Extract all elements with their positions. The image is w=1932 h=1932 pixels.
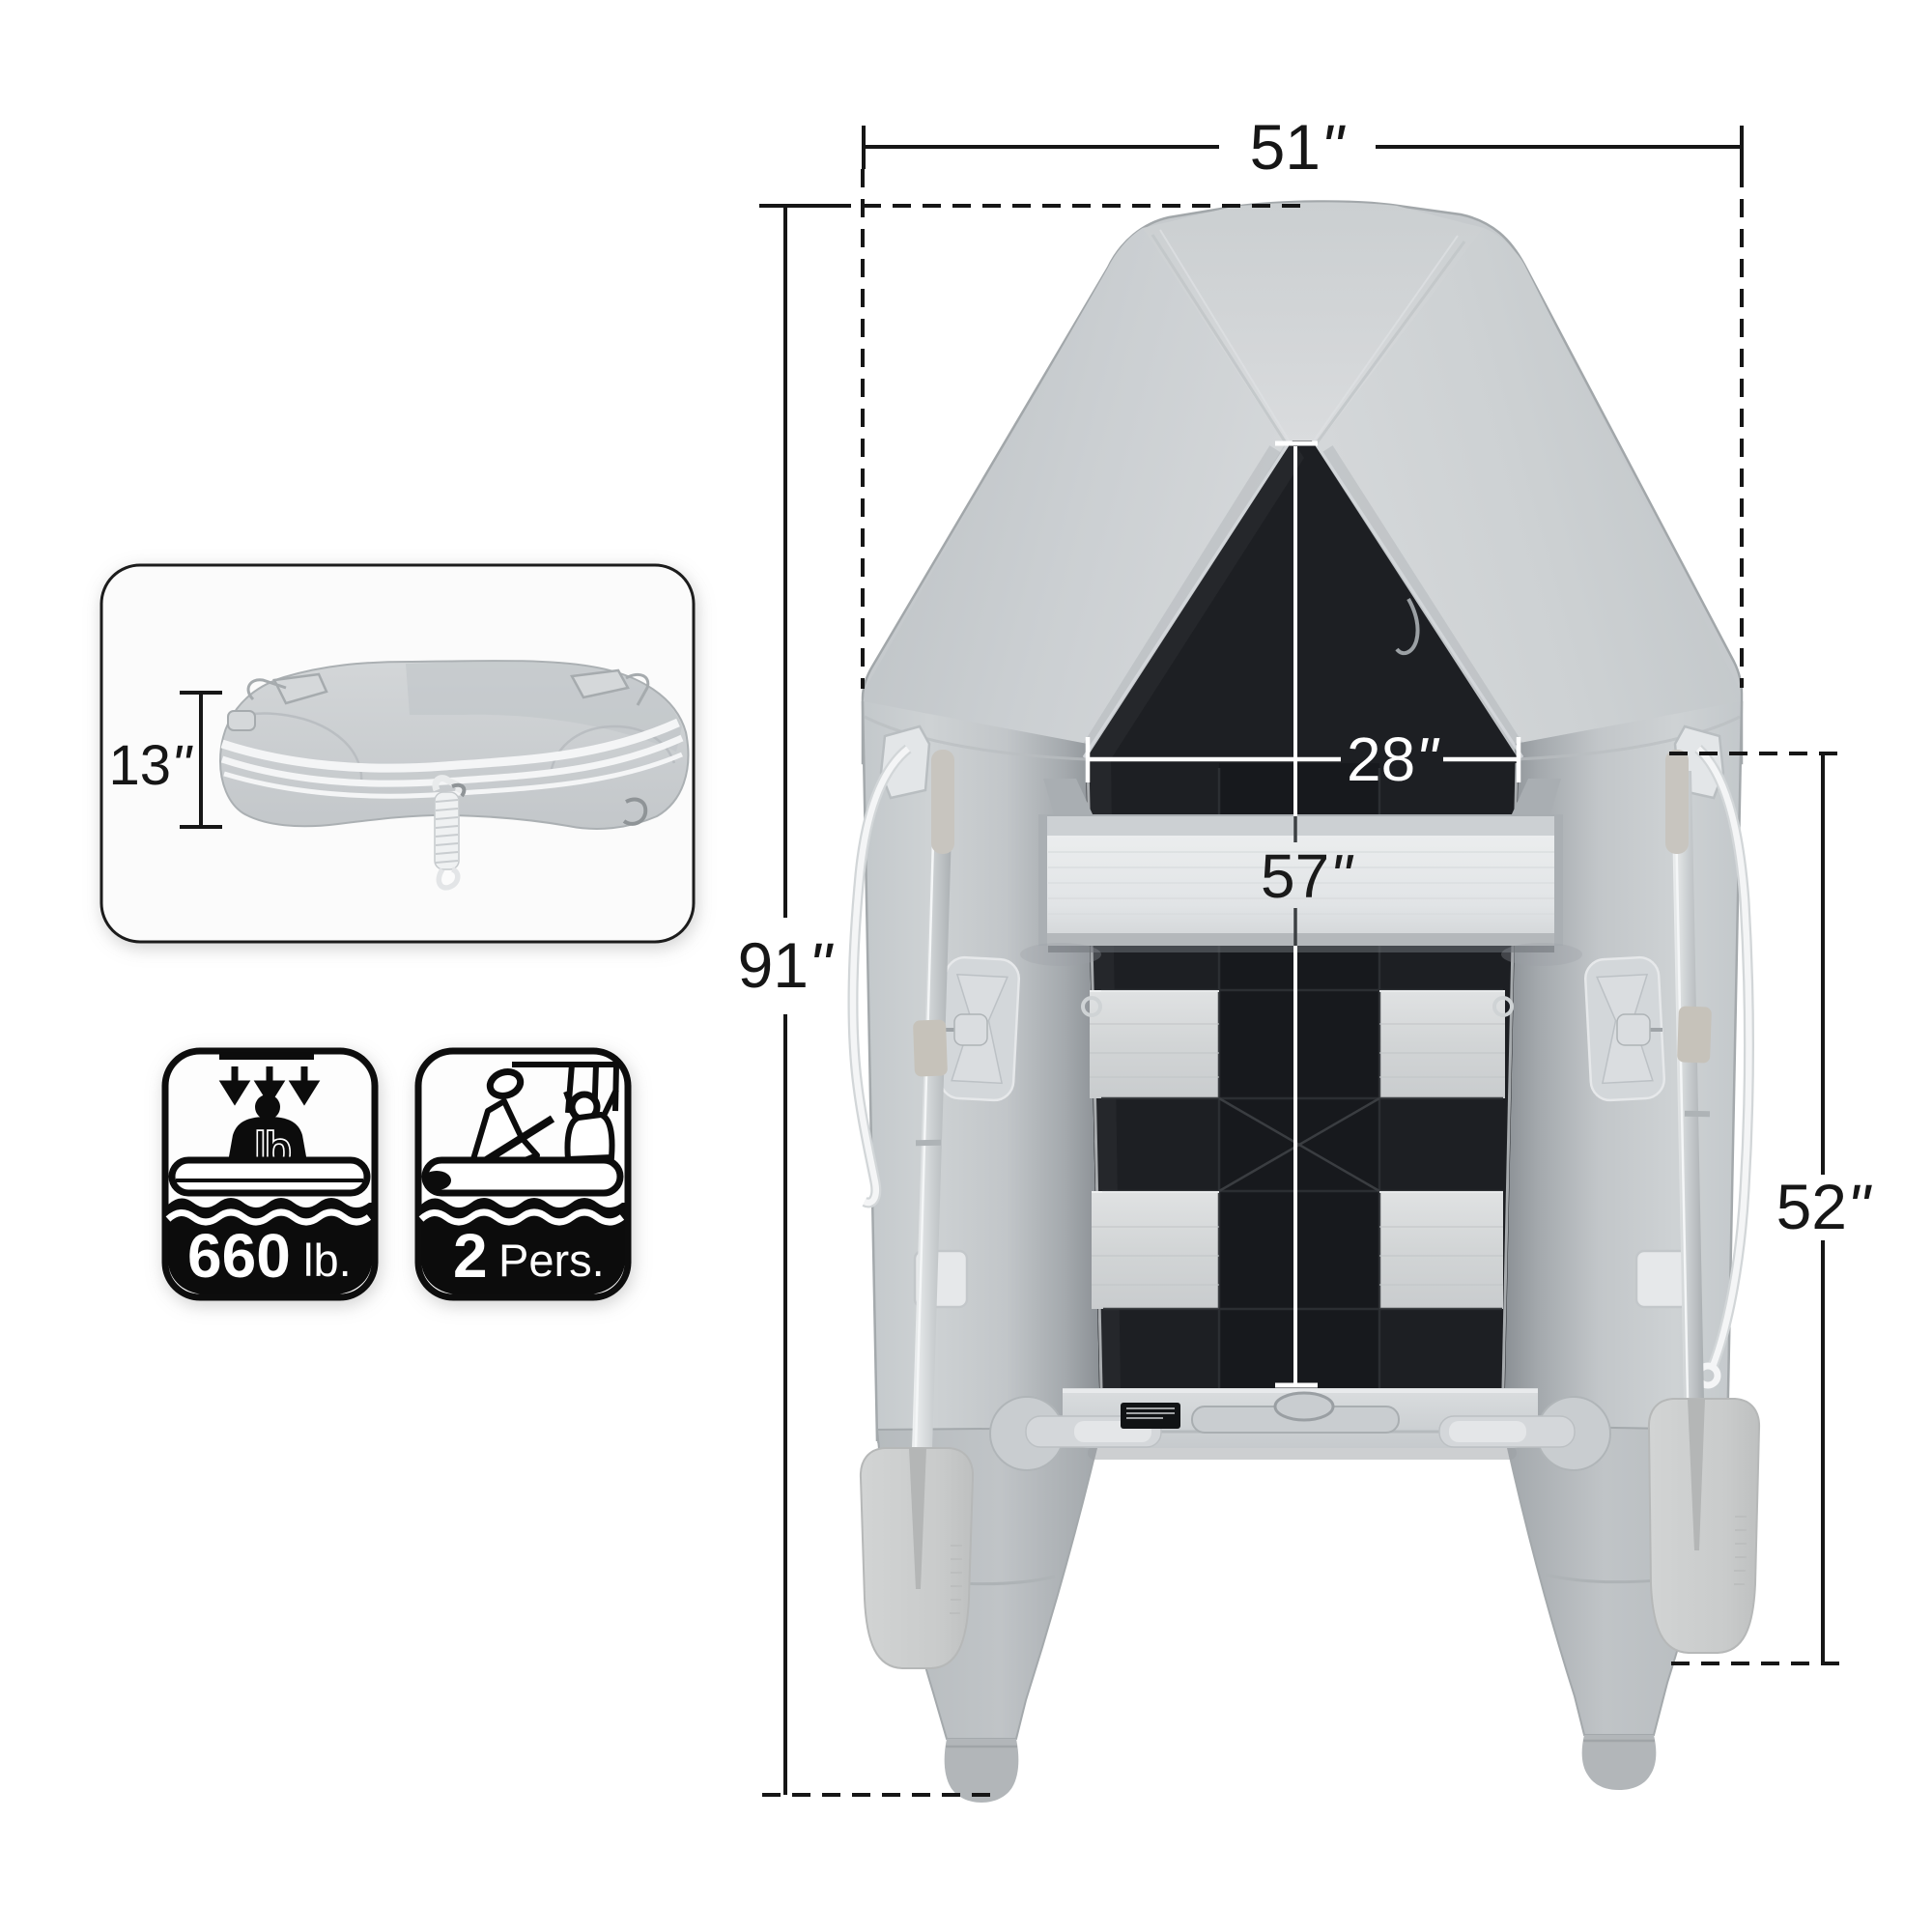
svg-text:28": 28" <box>1347 724 1440 794</box>
svg-text:2: 2 <box>453 1221 488 1291</box>
svg-text:52": 52" <box>1776 1171 1872 1242</box>
svg-text:13": 13" <box>108 734 193 797</box>
svg-text:Pers.: Pers. <box>498 1235 605 1286</box>
svg-text:57": 57" <box>1261 841 1354 911</box>
svg-text:91": 91" <box>738 929 834 1001</box>
svg-text:660: 660 <box>187 1221 291 1291</box>
svg-text:51": 51" <box>1250 111 1346 183</box>
svg-text:lb.: lb. <box>303 1235 352 1286</box>
